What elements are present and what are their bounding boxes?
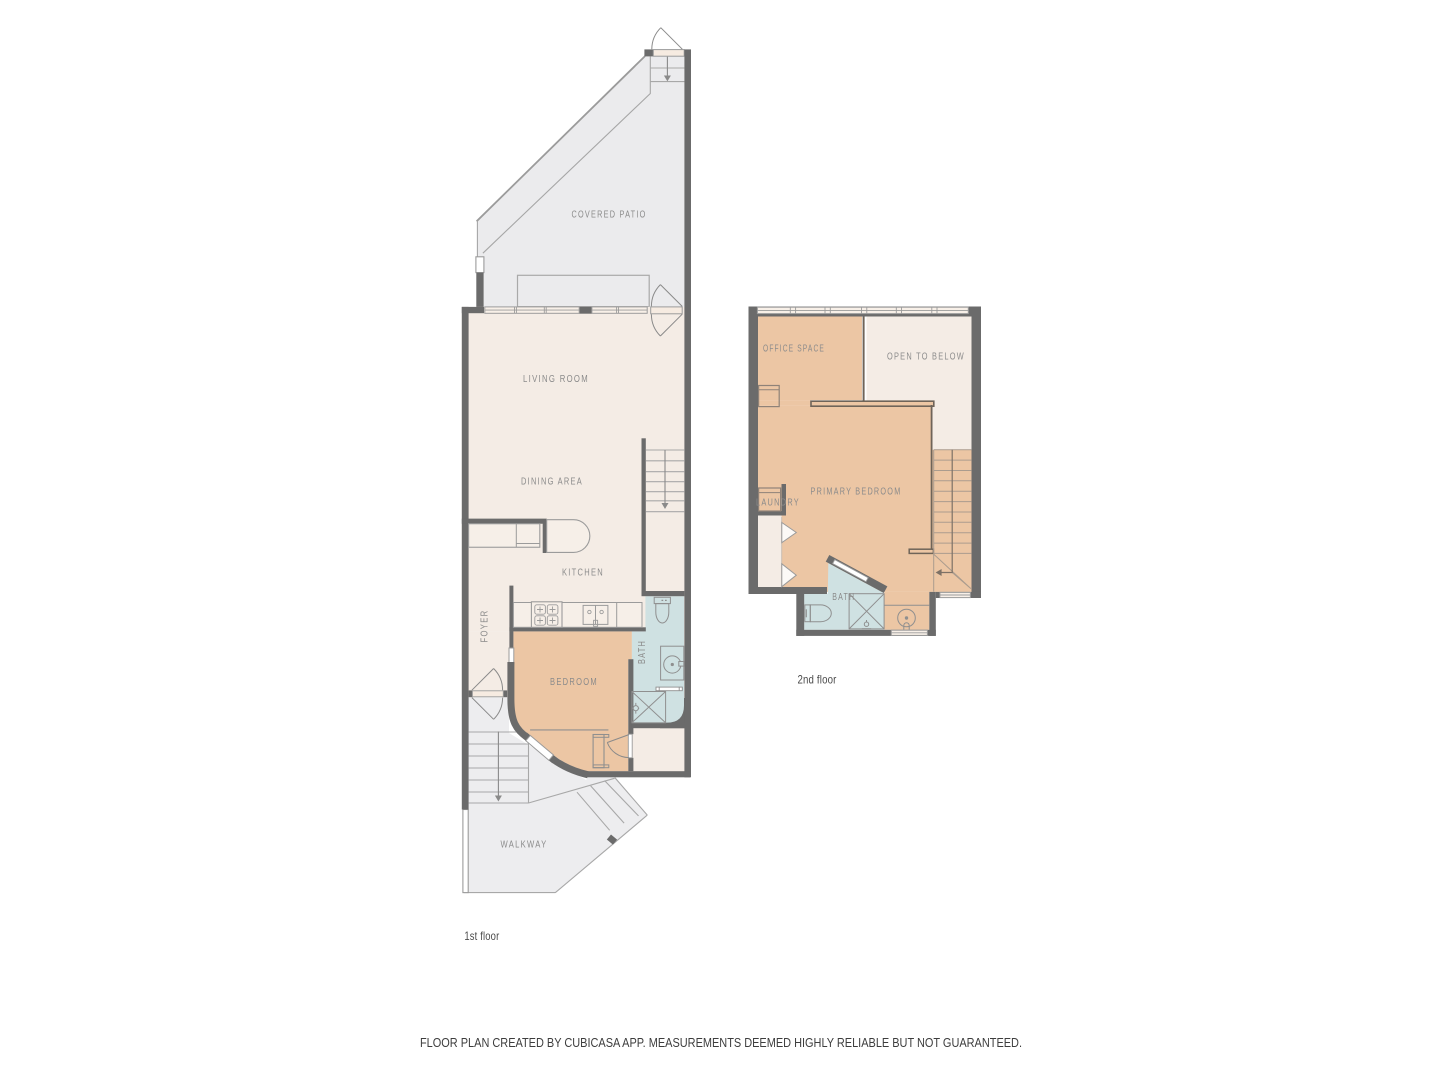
svg-text:2nd floor: 2nd floor bbox=[798, 673, 837, 687]
svg-text:FOYER: FOYER bbox=[480, 610, 491, 643]
svg-text:OFFICE SPACE: OFFICE SPACE bbox=[763, 344, 825, 355]
svg-text:KITCHEN: KITCHEN bbox=[562, 568, 604, 579]
svg-text:WALKWAY: WALKWAY bbox=[501, 840, 548, 851]
svg-text:BATH: BATH bbox=[832, 592, 855, 603]
svg-text:FLOOR PLAN CREATED BY CUBICASA: FLOOR PLAN CREATED BY CUBICASA APP. MEAS… bbox=[420, 1035, 1022, 1050]
svg-text:COVERED PATIO: COVERED PATIO bbox=[572, 210, 647, 221]
svg-text:PRIMARY BEDROOM: PRIMARY BEDROOM bbox=[811, 487, 902, 498]
svg-text:DINING AREA: DINING AREA bbox=[521, 477, 583, 488]
svg-text:LIVING ROOM: LIVING ROOM bbox=[523, 374, 589, 385]
svg-text:OPEN TO BELOW: OPEN TO BELOW bbox=[887, 352, 965, 363]
svg-text:1st floor: 1st floor bbox=[464, 929, 499, 943]
svg-text:BATH: BATH bbox=[637, 640, 648, 664]
svg-text:LAUNDRY: LAUNDRY bbox=[756, 498, 800, 509]
svg-text:BEDROOM: BEDROOM bbox=[550, 677, 598, 688]
